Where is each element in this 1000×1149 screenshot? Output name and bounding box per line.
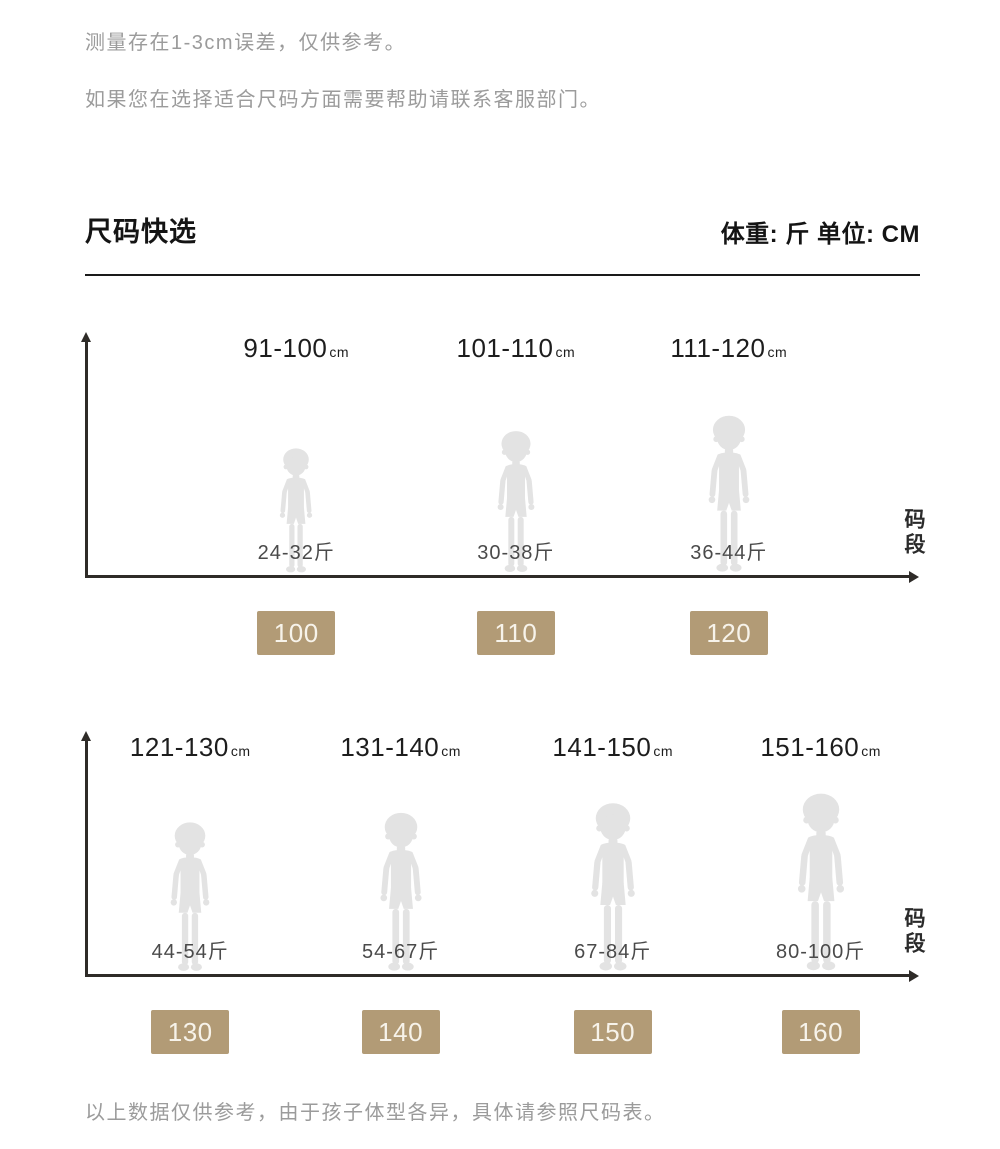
section-header: 尺码快选 体重: 斤 单位: CM <box>85 210 920 249</box>
figure-group-container: 121-130cm 44-54斤 130 131-140cm <box>85 732 920 1054</box>
size-group: 101-110cm 30-38斤 110 <box>426 333 606 655</box>
size-group: 121-130cm 44-54斤 130 <box>100 732 280 1054</box>
weight-range-label: 67-84斤 <box>523 935 703 964</box>
size-chart-row-1: 码段 91-100cm 24-32斤 100 101-110cm <box>85 333 920 655</box>
size-group: 151-160cm 80-100斤 160 <box>731 732 911 1054</box>
height-unit: cm <box>329 344 349 360</box>
note-measurement: 测量存在1-3cm误差，仅供参考。 <box>85 32 920 55</box>
height-range-label: 151-160cm <box>731 732 911 763</box>
height-range-label: 121-130cm <box>100 732 280 763</box>
height-unit: cm <box>441 743 461 759</box>
height-range-value: 111-120 <box>670 333 765 363</box>
figure-group-container: 91-100cm 24-32斤 100 101-110cm <box>85 333 920 655</box>
size-code-badge: 130 <box>151 1010 229 1054</box>
size-code-badge: 140 <box>362 1010 440 1054</box>
size-chart-row-2: 码段 121-130cm 44-54斤 130 131-140cm <box>85 732 920 1054</box>
height-range-label: 101-110cm <box>426 333 606 364</box>
height-unit: cm <box>231 743 251 759</box>
size-guide-page: 测量存在1-3cm误差，仅供参考。 如果您在选择适合尺码方面需要帮助请联系客服部… <box>0 0 1000 1125</box>
note-service: 如果您在选择适合尺码方面需要帮助请联系客服部门。 <box>85 89 920 112</box>
size-group: 111-120cm 36-44斤 120 <box>639 333 819 655</box>
page-title: 尺码快选 <box>85 210 197 249</box>
height-range-value: 141-150 <box>552 732 651 762</box>
size-code-badge: 150 <box>574 1010 652 1054</box>
height-unit: cm <box>861 743 881 759</box>
height-range-label: 141-150cm <box>523 732 703 763</box>
size-code-badge: 120 <box>690 611 768 655</box>
size-group: 91-100cm 24-32斤 100 <box>206 333 386 655</box>
weight-range-label: 24-32斤 <box>206 536 386 565</box>
size-code-badge: 110 <box>477 611 555 655</box>
height-unit: cm <box>556 344 576 360</box>
height-range-label: 91-100cm <box>206 333 386 364</box>
weight-range-label: 36-44斤 <box>639 536 819 565</box>
height-range-label: 111-120cm <box>639 333 819 364</box>
height-unit: cm <box>653 743 673 759</box>
height-range-label: 131-140cm <box>311 732 491 763</box>
weight-range-label: 44-54斤 <box>100 935 280 964</box>
units-label: 体重: 斤 单位: CM <box>721 214 920 249</box>
height-range-value: 121-130 <box>130 732 229 762</box>
header-divider <box>85 274 920 276</box>
height-range-value: 151-160 <box>760 732 859 762</box>
height-range-value: 131-140 <box>340 732 439 762</box>
height-range-value: 101-110 <box>457 333 554 363</box>
size-group: 131-140cm 54-67斤 140 <box>311 732 491 1054</box>
footer-disclaimer: 以上数据仅供参考，由于孩子体型各异，具体请参照尺码表。 <box>85 1102 920 1125</box>
height-unit: cm <box>767 344 787 360</box>
weight-range-label: 54-67斤 <box>311 935 491 964</box>
height-range-value: 91-100 <box>243 333 327 363</box>
size-group: 141-150cm 67-84斤 150 <box>523 732 703 1054</box>
weight-range-label: 30-38斤 <box>426 536 606 565</box>
size-code-badge: 160 <box>782 1010 860 1054</box>
weight-range-label: 80-100斤 <box>731 935 911 964</box>
size-code-badge: 100 <box>257 611 335 655</box>
